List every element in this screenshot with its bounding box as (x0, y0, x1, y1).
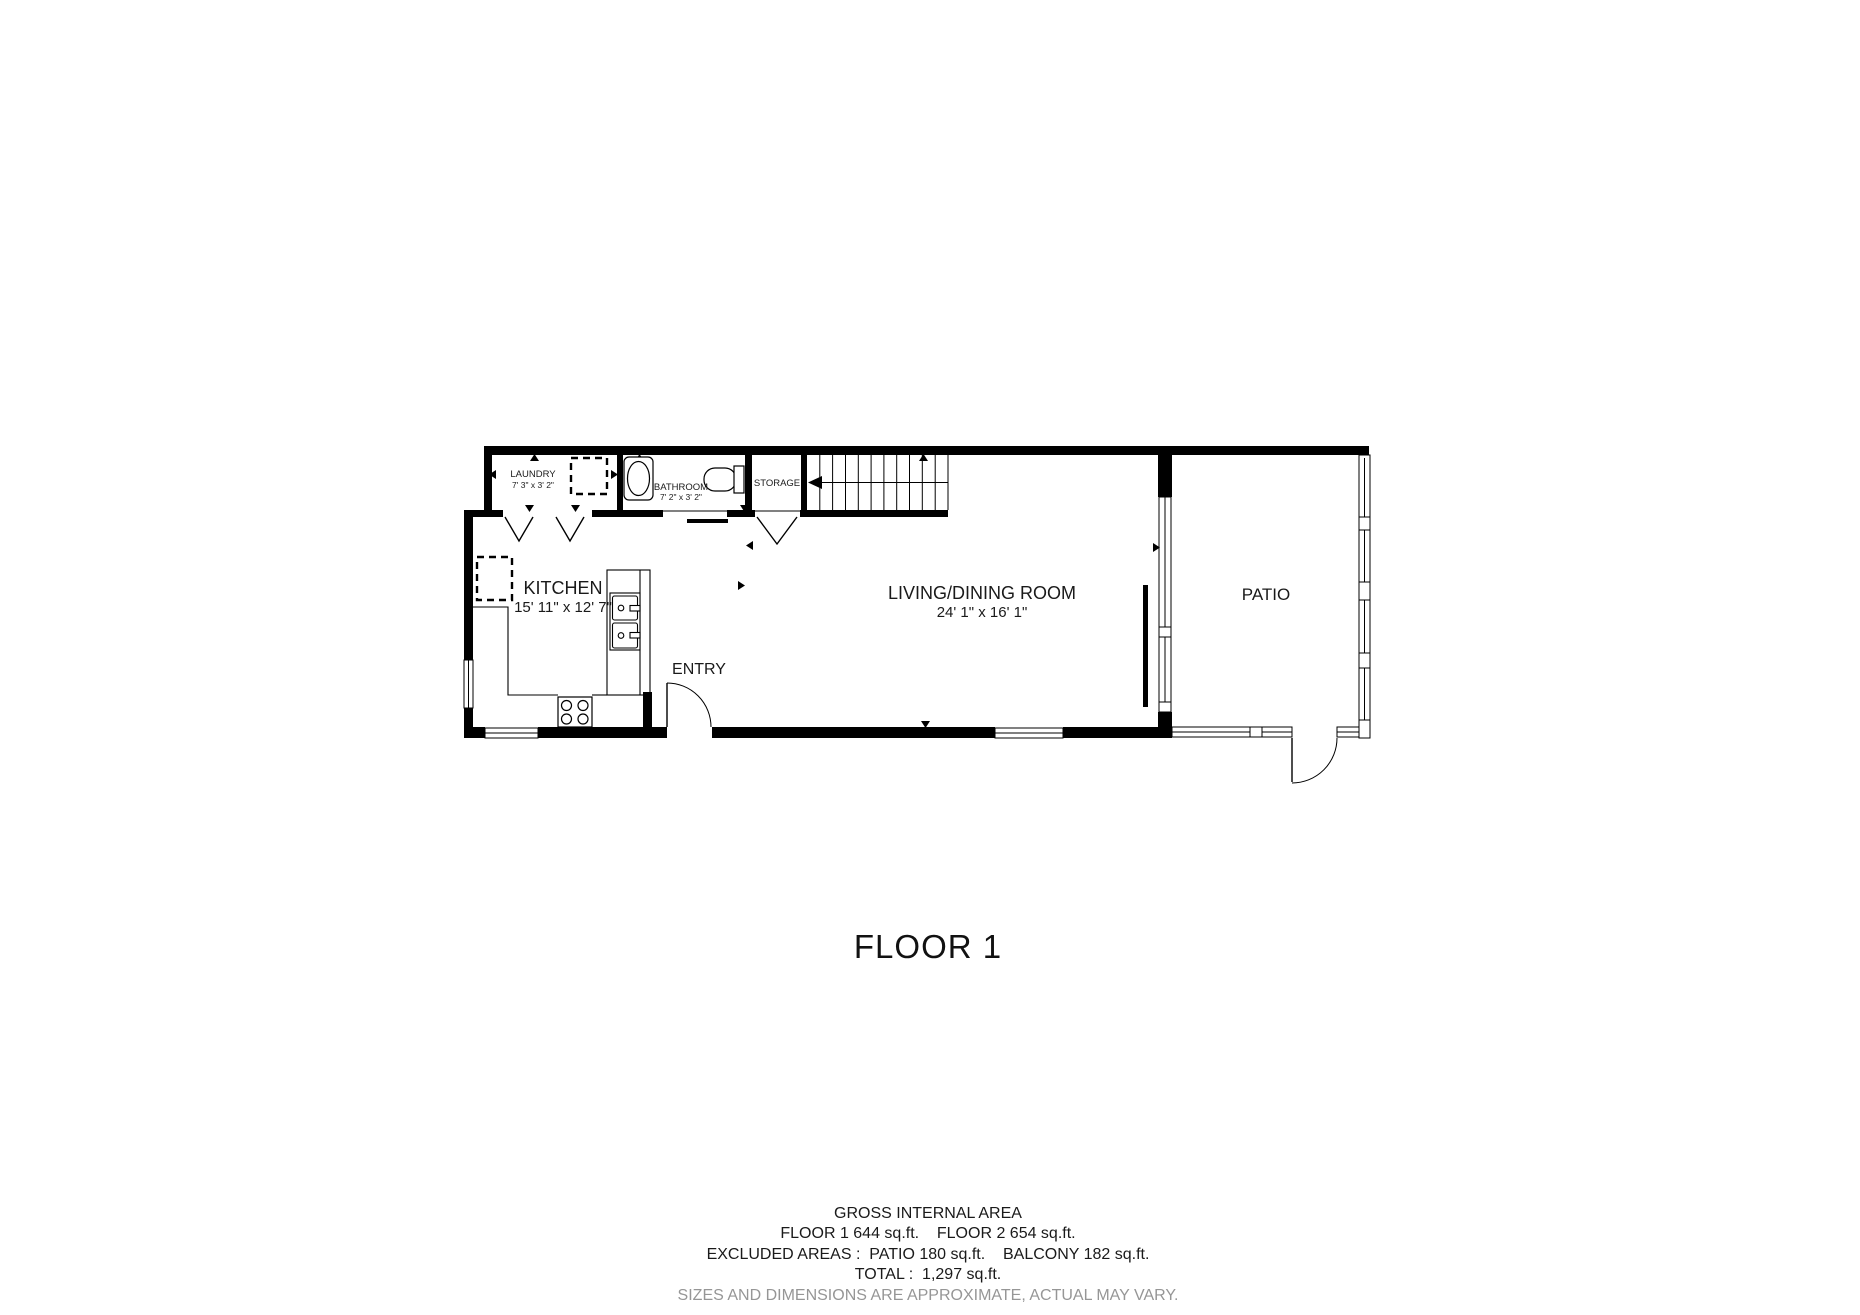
toilet (704, 466, 744, 493)
wall-bath-storage (745, 455, 752, 510)
kitchen-sink (610, 593, 640, 650)
wall-toprow-bottom-3 (727, 510, 755, 517)
total-area-line: TOTAL : 1,297 sq.ft. (428, 1265, 1428, 1285)
laundry-door-2 (556, 517, 584, 541)
wall-laundry-bath (617, 455, 623, 510)
fixtures (473, 457, 744, 727)
marker-laundry-bottom-1 (525, 505, 534, 512)
bathroom-dims: 7' 2" x 3' 2" (660, 492, 702, 502)
wall-toprow-bottom-1 (492, 510, 503, 517)
window-bottom-living (995, 728, 1063, 738)
marker-laundry-right (611, 470, 618, 479)
living-dining-dims: 24' 1" x 16' 1" (937, 604, 1028, 621)
window-left-wall (464, 660, 473, 708)
wall-divider-top (1158, 455, 1172, 497)
wall-bottom-1 (464, 727, 485, 738)
laundry-label: LAUNDRY (510, 469, 556, 480)
window-wall-patio-bottom (1172, 727, 1359, 737)
wall-toprow-bottom-2 (592, 510, 663, 517)
kitchen-dims: 15' 11" x 12' 7" (514, 599, 612, 616)
floor-title: FLOOR 1 (528, 928, 1328, 966)
storage-label: STORAGE (754, 478, 800, 489)
sliding-door-panel (1143, 585, 1148, 707)
wall-bottom-2 (538, 727, 667, 738)
excluded-areas-line: EXCLUDED AREAS : PATIO 180 sq.ft. BALCON… (428, 1245, 1428, 1265)
wall-kitchen-entry-stub (643, 692, 652, 727)
window-bottom-kitchen (485, 728, 538, 738)
marker-bottom-wall (921, 721, 930, 728)
wall-bottom-4 (1063, 727, 1172, 738)
floor-plan-drawing: LAUNDRY 7' 3" x 3' 2" BATHROOM 7' 2" x 3… (420, 420, 1460, 820)
entry-door (667, 683, 711, 727)
staircase (808, 454, 948, 510)
refrigerator-box (477, 557, 512, 600)
marker-laundry-top (530, 454, 539, 461)
marker-laundry-bottom-2 (571, 505, 580, 512)
disclaimer-line: SIZES AND DIMENSIONS ARE APPROXIMATE, AC… (428, 1286, 1428, 1306)
living-dining-label: LIVING/DINING ROOM (888, 583, 1076, 603)
wall-laundry-left (484, 446, 492, 517)
window-divider-patio (1159, 497, 1171, 712)
laundry-appliance-box (571, 458, 607, 494)
patio-label: PATIO (1242, 585, 1291, 604)
wall-divider-bottom (1158, 712, 1172, 738)
stairs-up-marker (919, 454, 928, 461)
marker-hall-right (738, 581, 745, 590)
wall-storage-stairs (801, 455, 807, 510)
patio-door (1292, 738, 1337, 783)
bathroom-sliding-door-bar (687, 519, 728, 523)
bathtub (624, 457, 653, 500)
window-wall-patio-right (1359, 455, 1370, 738)
stairs-direction-arrow (808, 476, 822, 489)
storage-door (757, 517, 797, 544)
wall-stairs-bottom (800, 510, 948, 517)
kitchen-label: KITCHEN (523, 578, 602, 598)
laundry-door-1 (505, 517, 533, 541)
wall-left-upper (464, 510, 473, 660)
floor-areas-line: FLOOR 1 644 sq.ft. FLOOR 2 654 sq.ft. (428, 1224, 1428, 1244)
wall-top (484, 446, 1369, 455)
stove (558, 697, 592, 727)
area-summary: GROSS INTERNAL AREA FLOOR 1 644 sq.ft. F… (428, 1204, 1428, 1306)
marker-hall-left (746, 541, 753, 550)
floor-plan-page: LAUNDRY 7' 3" x 3' 2" BATHROOM 7' 2" x 3… (0, 0, 1860, 1315)
wall-bottom-3 (712, 727, 995, 738)
entry-label: ENTRY (672, 661, 726, 678)
gross-internal-area-heading: GROSS INTERNAL AREA (428, 1204, 1428, 1224)
laundry-dims: 7' 3" x 3' 2" (512, 480, 554, 490)
